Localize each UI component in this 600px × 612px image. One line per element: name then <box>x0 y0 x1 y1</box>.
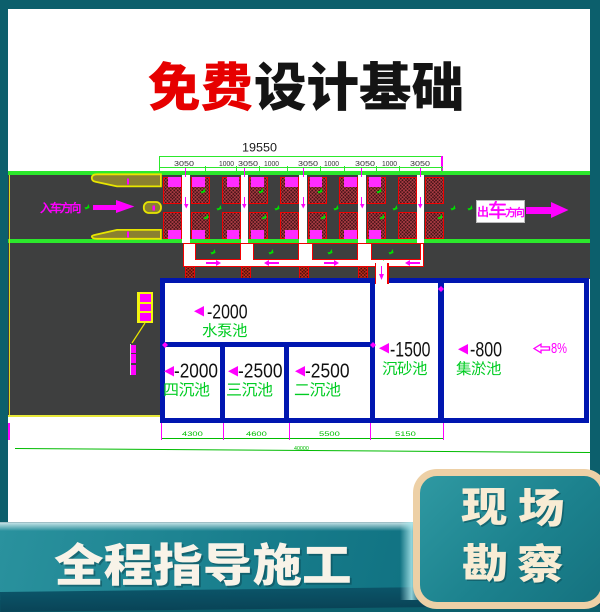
svg-text:4600: 4600 <box>246 431 268 438</box>
svg-text:5150: 5150 <box>395 431 417 438</box>
svg-text:-2000: -2000 <box>207 301 248 323</box>
svg-text:8%: 8% <box>551 340 567 357</box>
svg-text:-2500: -2500 <box>305 360 350 383</box>
svg-text:4300: 4300 <box>182 431 204 438</box>
svg-text:19550: 19550 <box>242 140 277 154</box>
svg-text:5500: 5500 <box>319 431 341 438</box>
svg-text:40000: 40000 <box>294 445 309 451</box>
svg-text:-800: -800 <box>470 337 502 361</box>
svg-text:-1500: -1500 <box>390 337 431 361</box>
svg-text:-2500: -2500 <box>238 360 283 383</box>
svg-text:-2000: -2000 <box>174 360 218 383</box>
